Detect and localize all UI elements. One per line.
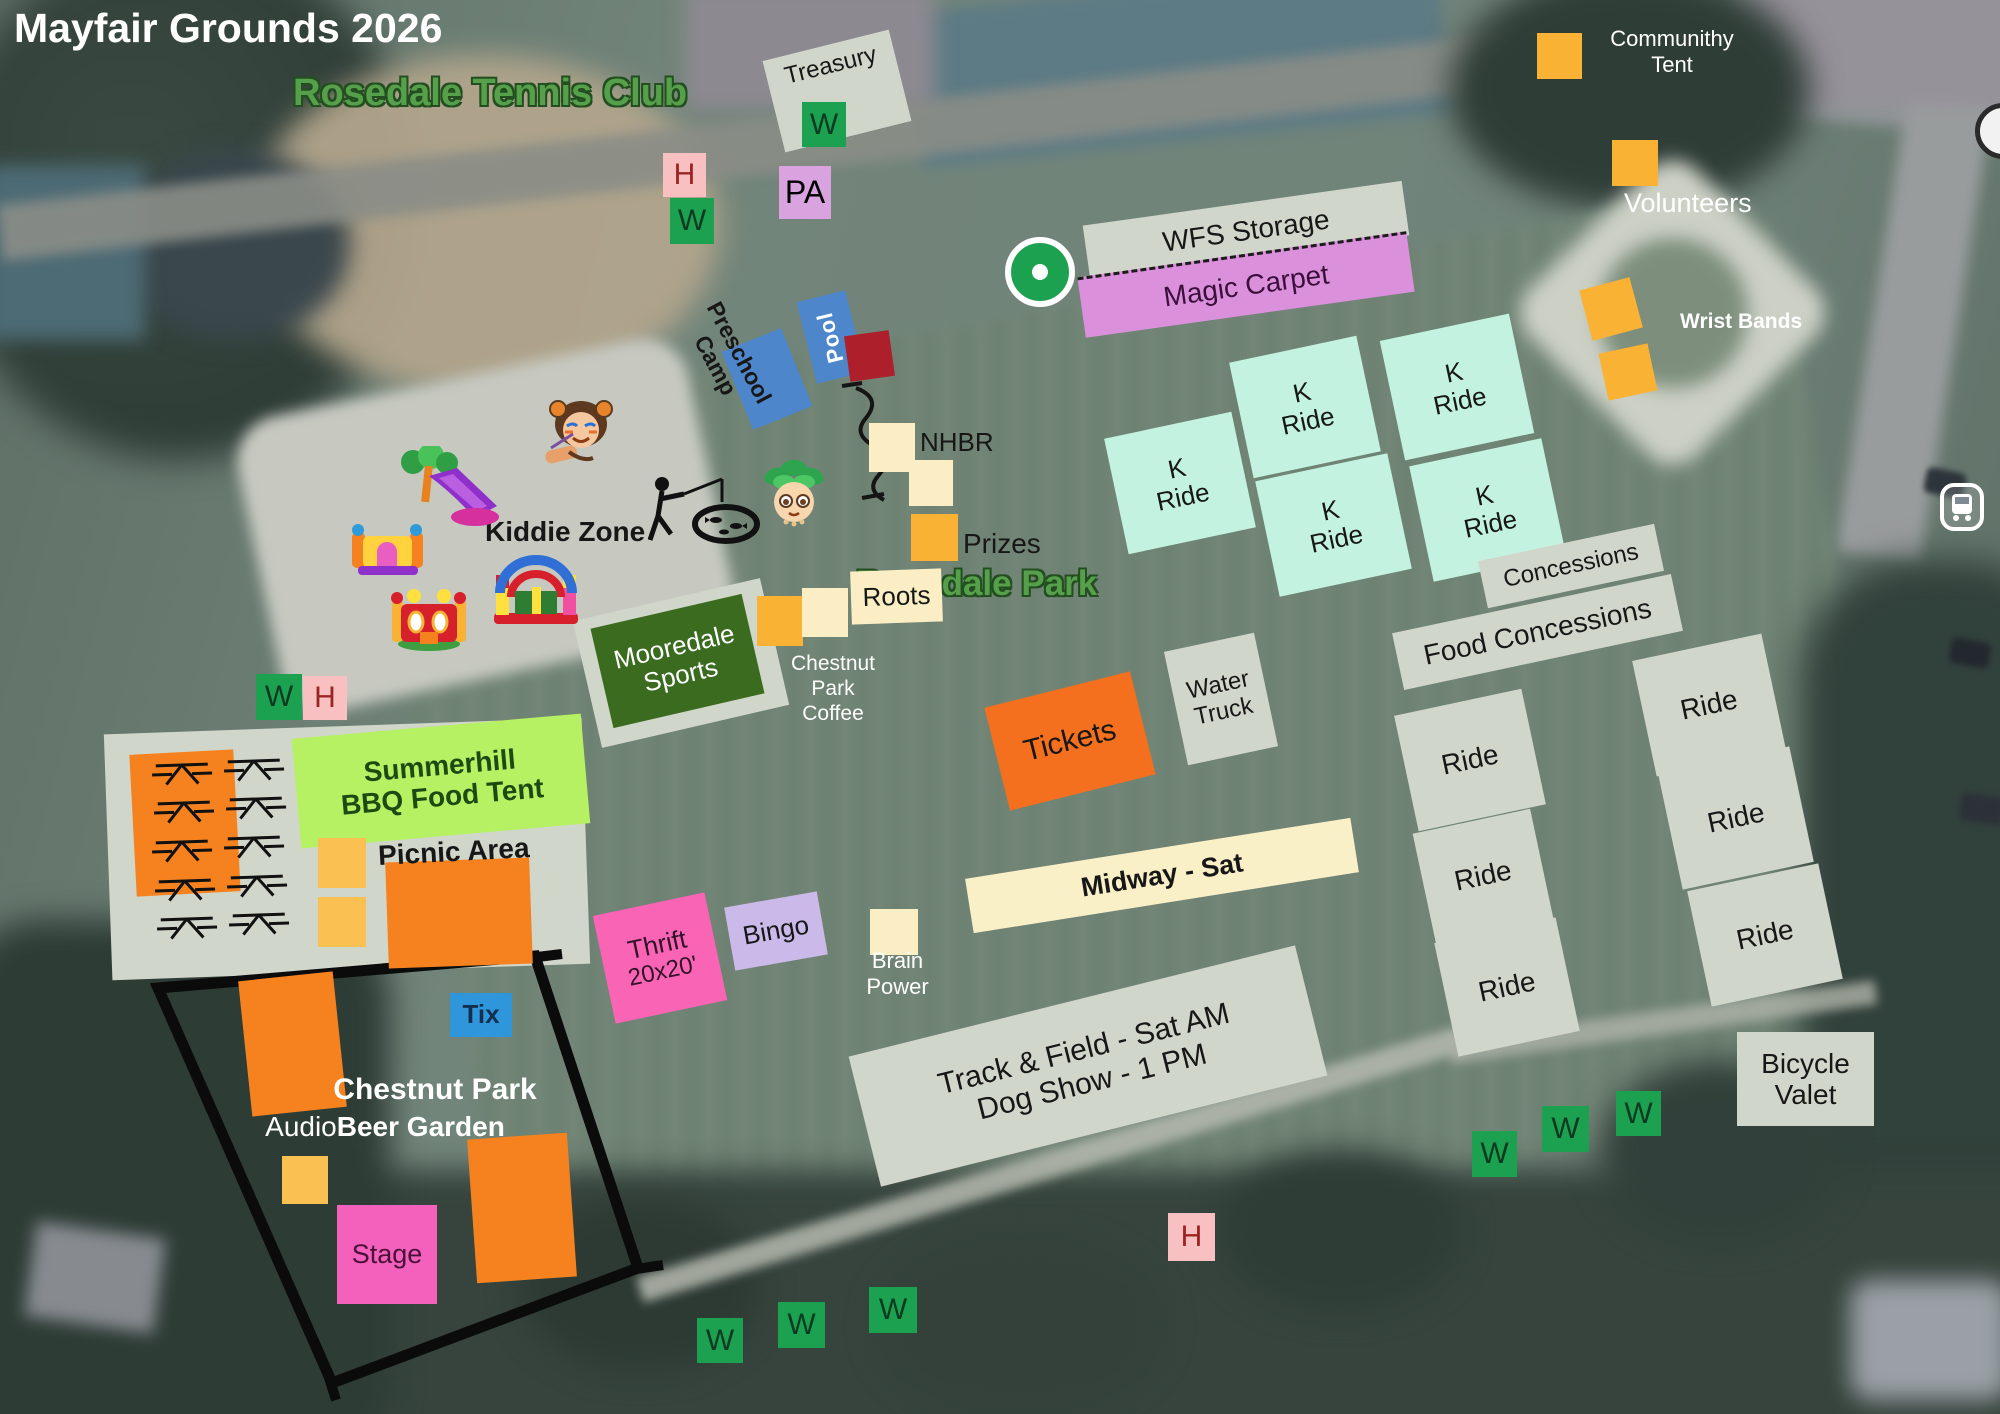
- beer-garden-name: AudioBeer Garden: [205, 1110, 565, 1143]
- zone-k-ride-3: KRide: [1255, 453, 1412, 596]
- zone-thrift: Thrift 20x20': [593, 892, 727, 1023]
- bounce-castle-icon: [350, 516, 425, 578]
- zone-roots: Roots: [850, 568, 943, 624]
- h-marker-top: H: [663, 153, 706, 197]
- fish-pond-icon: [695, 507, 757, 541]
- tree-clump-3: [1220, 1150, 1460, 1310]
- zone-bingo: Bingo: [724, 891, 828, 970]
- coffee-square-cream: [802, 588, 848, 637]
- beer-garden-amber-square: [282, 1156, 328, 1204]
- zone-tix: Tix: [450, 993, 512, 1037]
- red-box: [844, 330, 895, 382]
- fishing-figure-icon: [648, 474, 760, 552]
- picnic-table-icon: [154, 909, 219, 943]
- trees-bottom: [0, 1170, 2000, 1414]
- zone-stage: Stage: [337, 1205, 437, 1304]
- water-marker-right-2: W: [1542, 1106, 1589, 1152]
- water-marker-bottom-3: W: [869, 1287, 917, 1333]
- beer-garden-title: Chestnut Park: [310, 1072, 560, 1107]
- water-marker-right-1: W: [1472, 1131, 1517, 1177]
- picnic-table-icon: [149, 832, 214, 866]
- face-paint-icon: [543, 396, 619, 466]
- rainbow-bounce-icon: [490, 551, 582, 629]
- picnic-orange-rect-2: [385, 858, 533, 969]
- wrist-bands-label: Wrist Bands: [1680, 310, 1802, 335]
- picnic-table-icon: [149, 755, 214, 789]
- picnic-table-icon: [152, 871, 217, 905]
- transit-station-icon: [1939, 482, 1985, 532]
- prizes-square: [911, 514, 958, 561]
- event-map: Mayfair Grounds 2026 Rosedale Tennis Clu…: [0, 0, 2000, 1414]
- picnic-amber-square-2: [318, 897, 366, 947]
- volunteers-label: Volunteers: [1624, 188, 1752, 220]
- picnic-table-icon: [223, 789, 288, 823]
- zone-tickets: Tickets: [984, 671, 1155, 810]
- picnic-table-icon: [226, 905, 291, 939]
- water-marker-bottom-1: W: [697, 1318, 743, 1363]
- tennis-courts-top: [908, 0, 1451, 167]
- zone-midway: Midway - Sat: [965, 818, 1359, 933]
- tennis-courts-left: [0, 165, 145, 340]
- houses-bottom-right: [1850, 1280, 2000, 1400]
- leaf-hair-face-icon: [758, 458, 830, 530]
- house-bottom-left: [24, 1221, 166, 1333]
- zone-water-truck: Water Truck: [1164, 633, 1278, 766]
- community-tent-label: Communithy Tent: [1592, 26, 1752, 78]
- trees-right: [1800, 560, 2000, 1414]
- picnic-table-icon: [221, 828, 286, 862]
- tree-clump-2: [880, 1240, 1160, 1410]
- picnic-table-icon: [221, 751, 286, 785]
- pa-marker: PA: [779, 166, 831, 219]
- zone-bicycle-valet: Bicycle Valet: [1737, 1032, 1874, 1126]
- coffee-square-orange: [757, 596, 803, 646]
- water-marker-left: W: [256, 674, 302, 720]
- location-marker-icon: [1005, 237, 1075, 307]
- red-castle-bounce-icon: [390, 586, 468, 652]
- h-marker-bottom: H: [1168, 1213, 1215, 1261]
- water-marker-bottom-2: W: [778, 1302, 825, 1348]
- zone-k-ride-1: KRide: [1104, 412, 1256, 554]
- volunteers-square: [1612, 140, 1658, 186]
- water-marker-treasury: W: [802, 102, 846, 147]
- beer-garden-orange-2: [467, 1133, 577, 1284]
- picnic-amber-square-1: [318, 838, 366, 888]
- kiddie-zone-label: Kiddie Zone: [485, 515, 645, 548]
- nhbr-label: NHBR: [920, 427, 994, 458]
- zone-ride-6: Ride: [1687, 863, 1843, 1006]
- zone-k-ride-2: KRide: [1229, 336, 1381, 478]
- car-2: [1948, 637, 1992, 670]
- brain-power-label: Brain Power: [850, 948, 945, 1000]
- chestnut-park-coffee-label: Chestnut Park Coffee: [768, 652, 898, 726]
- nhbr-square-2: [909, 460, 953, 506]
- zone-k-ride-4: KRide: [1380, 314, 1534, 461]
- pond: [120, 150, 350, 340]
- parking-lot: [1730, 0, 2000, 105]
- water-marker-top: W: [670, 198, 714, 244]
- page-title: Mayfair Grounds 2026: [14, 4, 442, 52]
- zone-ride-3: Ride: [1434, 917, 1579, 1056]
- car-3: [1958, 792, 2000, 826]
- prizes-label: Prizes: [963, 527, 1041, 560]
- picnic-table-icon: [224, 867, 289, 901]
- map-pin-icon: [1975, 103, 2000, 159]
- trees-top-left: [0, 0, 420, 460]
- h-marker-left: H: [303, 676, 347, 720]
- water-marker-right-3: W: [1616, 1091, 1661, 1136]
- tennis-club-map-label: Rosedale Tennis Club: [293, 72, 687, 115]
- wrist-bands-square-2: [1599, 343, 1658, 400]
- picnic-table-icon: [151, 793, 216, 827]
- wrist-bands-square-1: [1579, 277, 1643, 341]
- community-tent-square: [1537, 33, 1582, 79]
